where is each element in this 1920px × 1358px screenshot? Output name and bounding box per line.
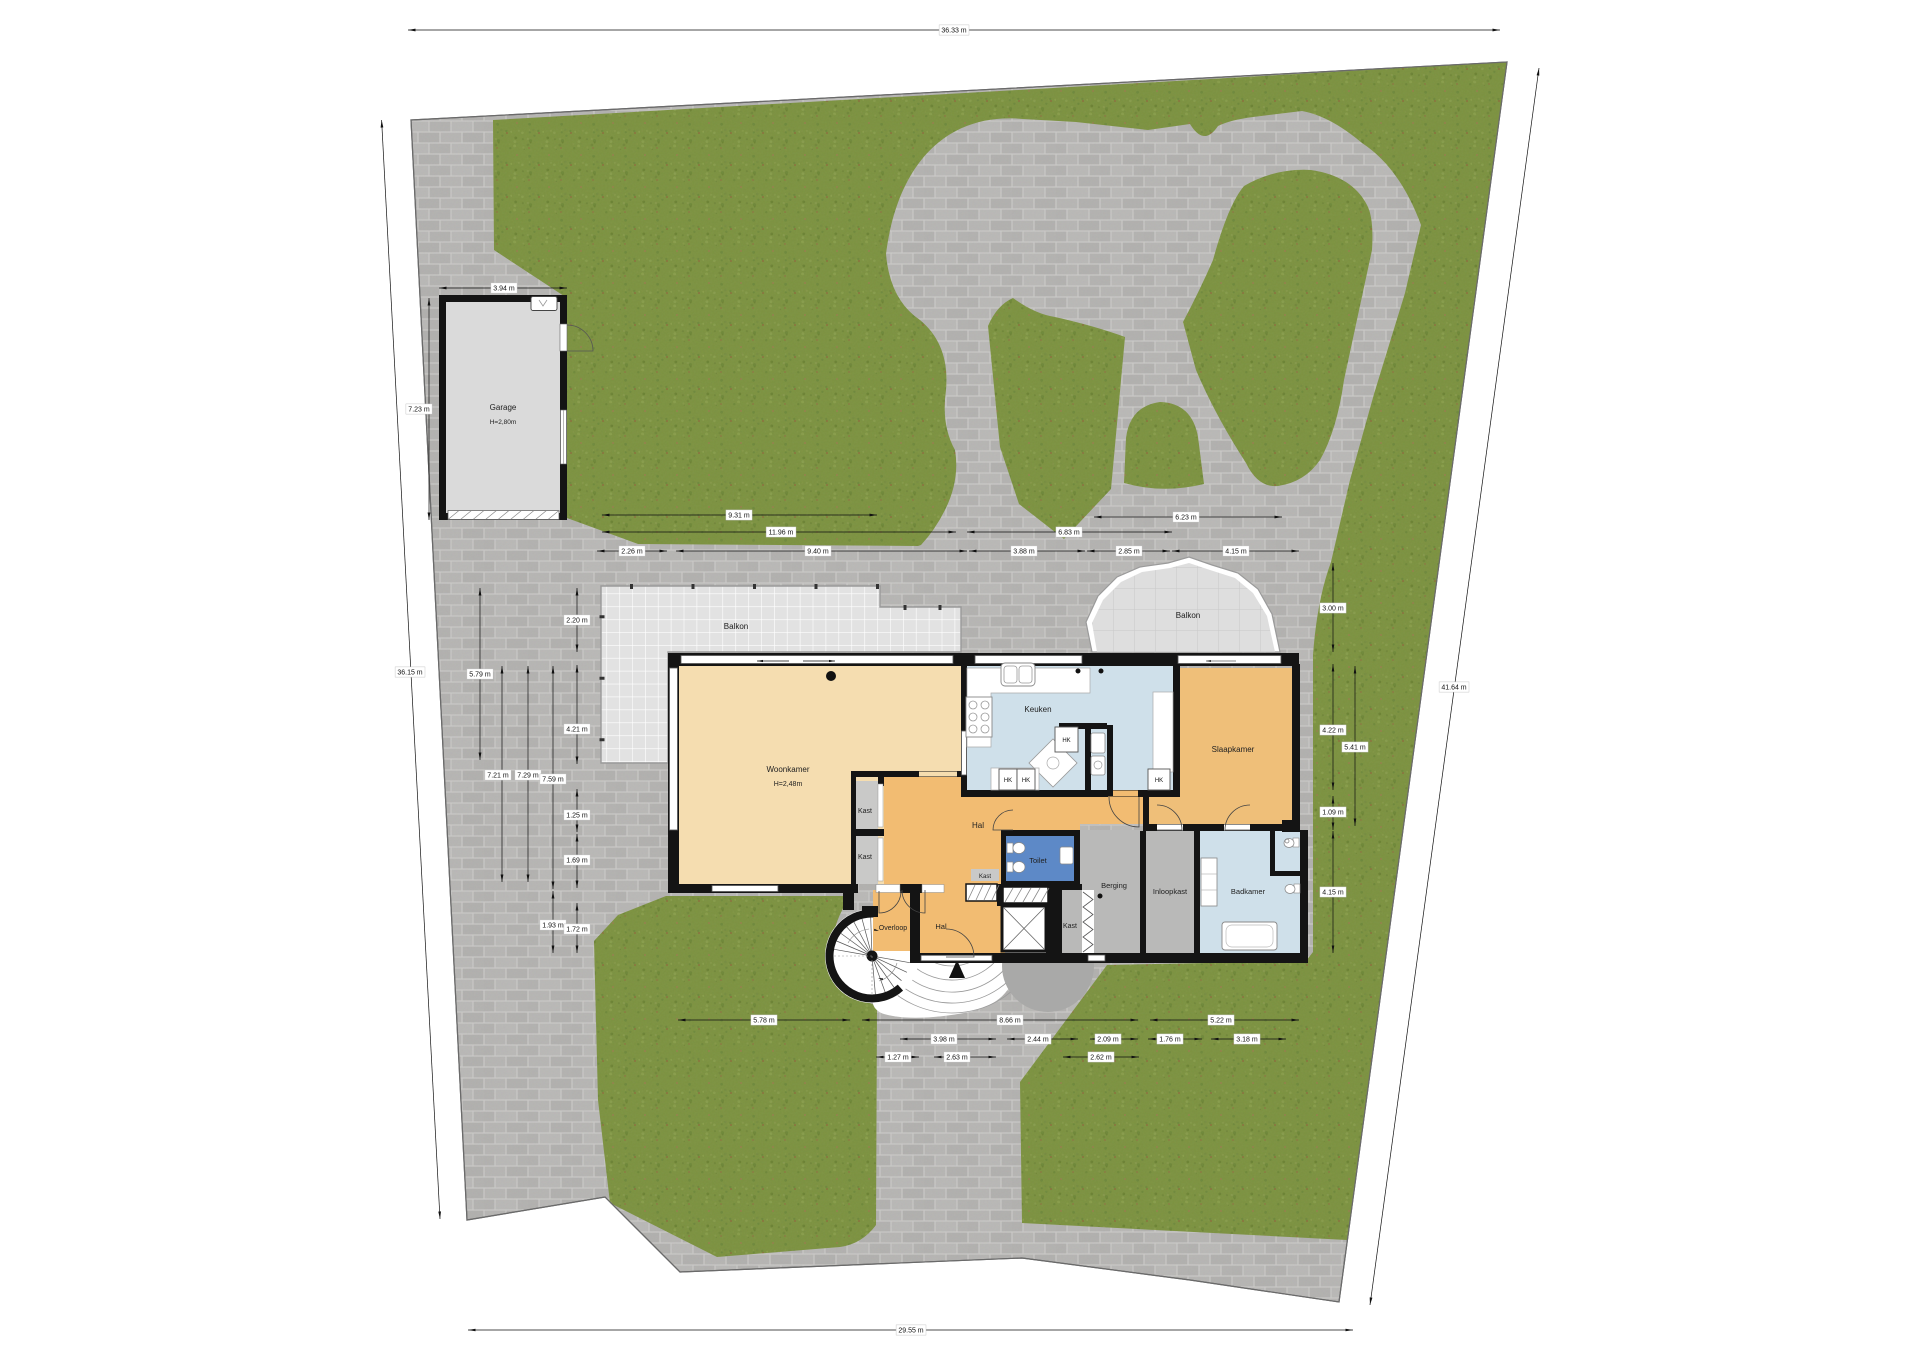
svg-text:7.59 m: 7.59 m xyxy=(542,777,564,784)
svg-text:29.55 m: 29.55 m xyxy=(898,1328,923,1335)
svg-text:1.72 m: 1.72 m xyxy=(566,927,588,934)
svg-text:Hal: Hal xyxy=(972,821,984,830)
svg-text:1.25 m: 1.25 m xyxy=(566,813,588,820)
svg-text:Woonkamer: Woonkamer xyxy=(767,765,810,774)
svg-text:11.96 m: 11.96 m xyxy=(769,530,794,537)
svg-text:4.15 m: 4.15 m xyxy=(1322,890,1344,897)
svg-text:1.69 m: 1.69 m xyxy=(566,858,588,865)
svg-text:4.21 m: 4.21 m xyxy=(566,727,588,734)
svg-text:2.62 m: 2.62 m xyxy=(1090,1055,1112,1062)
svg-text:9.40 m: 9.40 m xyxy=(807,549,829,556)
svg-text:HK: HK xyxy=(1062,738,1070,744)
svg-text:Berging: Berging xyxy=(1101,881,1127,890)
svg-text:1.27 m: 1.27 m xyxy=(887,1055,909,1062)
svg-text:2.20 m: 2.20 m xyxy=(566,618,588,625)
svg-text:Overloop: Overloop xyxy=(879,925,908,932)
svg-text:Badkamer: Badkamer xyxy=(1231,887,1266,896)
svg-text:Hal: Hal xyxy=(935,922,947,931)
svg-text:36.33 m: 36.33 m xyxy=(941,28,966,35)
svg-text:3.98 m: 3.98 m xyxy=(933,1037,955,1044)
svg-text:HK: HK xyxy=(1155,778,1163,784)
svg-text:HK: HK xyxy=(1004,778,1012,784)
svg-text:6.23 m: 6.23 m xyxy=(1175,515,1197,522)
svg-text:4.15 m: 4.15 m xyxy=(1225,549,1247,556)
svg-text:2.63 m: 2.63 m xyxy=(946,1055,968,1062)
svg-text:7.21 m: 7.21 m xyxy=(487,773,509,780)
svg-text:6.83 m: 6.83 m xyxy=(1058,530,1080,537)
svg-text:8.66 m: 8.66 m xyxy=(999,1018,1021,1025)
svg-text:Kast: Kast xyxy=(858,854,872,861)
svg-text:4.22 m: 4.22 m xyxy=(1322,728,1344,735)
svg-text:Toilet: Toilet xyxy=(1029,856,1047,865)
svg-text:2.26 m: 2.26 m xyxy=(621,549,643,556)
svg-text:7.23 m: 7.23 m xyxy=(408,407,430,414)
svg-text:41.64 m: 41.64 m xyxy=(1441,685,1466,692)
svg-text:5.78 m: 5.78 m xyxy=(753,1018,775,1025)
svg-text:2.85 m: 2.85 m xyxy=(1118,549,1140,556)
svg-text:Inloopkast: Inloopkast xyxy=(1153,887,1188,896)
svg-text:H=2,80m: H=2,80m xyxy=(490,419,517,426)
svg-text:1.09 m: 1.09 m xyxy=(1322,810,1344,817)
svg-text:2.44 m: 2.44 m xyxy=(1027,1037,1049,1044)
svg-text:Keuken: Keuken xyxy=(1024,705,1051,714)
svg-text:3.18 m: 3.18 m xyxy=(1236,1037,1258,1044)
svg-text:Balkon: Balkon xyxy=(724,622,748,631)
svg-text:HK: HK xyxy=(1022,778,1030,784)
svg-text:Slaapkamer: Slaapkamer xyxy=(1212,745,1255,754)
svg-text:Balkon: Balkon xyxy=(1176,611,1200,620)
svg-text:5.22 m: 5.22 m xyxy=(1210,1018,1232,1025)
svg-text:5.79 m: 5.79 m xyxy=(469,672,491,679)
svg-text:Garage: Garage xyxy=(490,403,517,412)
svg-text:2.09 m: 2.09 m xyxy=(1097,1037,1119,1044)
svg-text:3.94 m: 3.94 m xyxy=(493,286,515,293)
svg-text:H=2,48m: H=2,48m xyxy=(774,781,803,788)
svg-text:3.00 m: 3.00 m xyxy=(1322,606,1344,613)
svg-text:9.31 m: 9.31 m xyxy=(728,513,750,520)
svg-text:7.29 m: 7.29 m xyxy=(517,773,539,780)
svg-text:1.76 m: 1.76 m xyxy=(1159,1037,1181,1044)
svg-text:3.88 m: 3.88 m xyxy=(1013,549,1035,556)
svg-text:Kast: Kast xyxy=(858,808,872,815)
svg-text:Kast: Kast xyxy=(1063,923,1077,930)
svg-text:5.41 m: 5.41 m xyxy=(1344,745,1366,752)
svg-text:1.93 m: 1.93 m xyxy=(542,923,564,930)
svg-text:Kast: Kast xyxy=(979,874,991,880)
svg-text:36.15 m: 36.15 m xyxy=(397,670,422,677)
